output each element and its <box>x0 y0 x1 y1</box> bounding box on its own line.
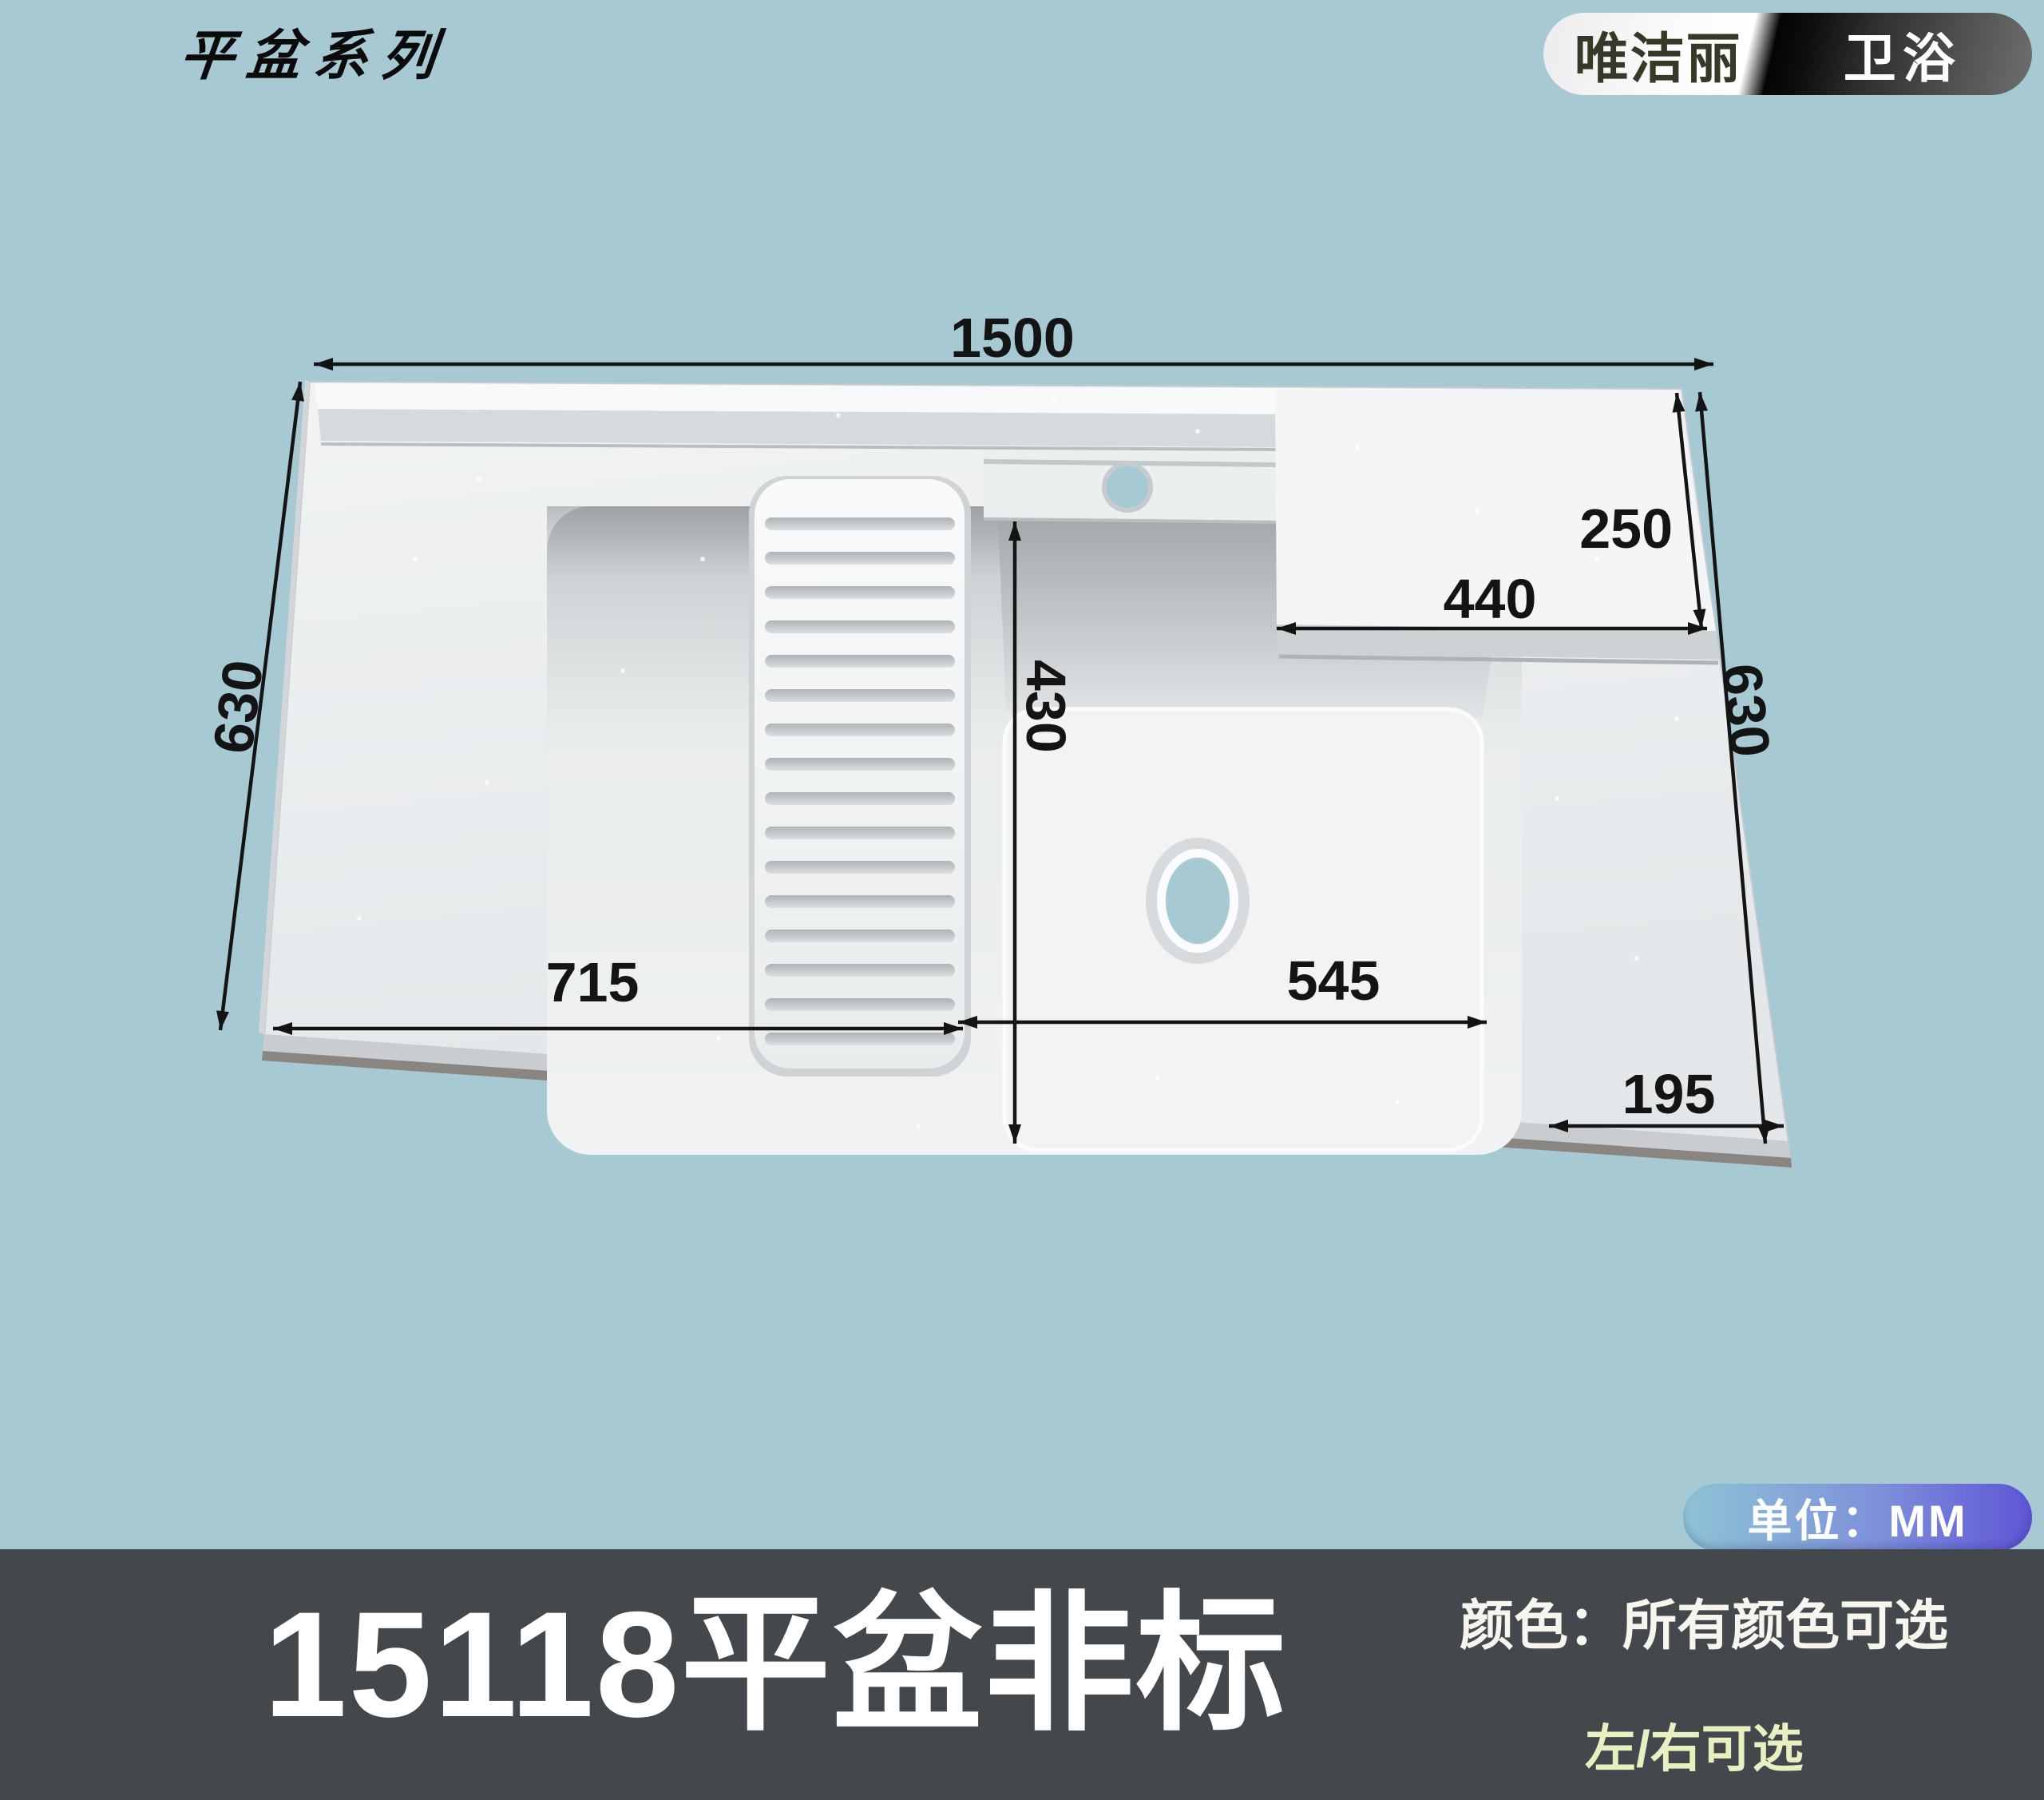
dim-label-basin-width: 545 <box>1287 950 1380 1012</box>
backsplash-front <box>318 409 1291 447</box>
side-option-note: 左/右可选 <box>1585 1723 1804 1774</box>
drain-hole <box>1166 858 1230 944</box>
color-option-note: 颜色：所有颜色可选 <box>1460 1599 1948 1653</box>
dim-label-total-width: 1500 <box>950 307 1075 369</box>
product-model: 15118平盆非标 <box>263 1589 1287 1739</box>
dim-label-right-depth: 630 <box>1710 660 1782 759</box>
faucet-hole <box>1104 464 1151 510</box>
unit-badge: 单位：MM <box>1683 1484 2032 1551</box>
dim-label-shelf-width: 440 <box>1444 568 1537 630</box>
washboard-plate <box>755 479 965 1069</box>
dim-label-right-margin: 195 <box>1622 1063 1716 1125</box>
unit-badge-label: 单位：MM <box>1747 1485 1967 1550</box>
dim-label-washboard: 715 <box>546 951 640 1013</box>
footer-bar: 15118平盆非标 颜色：所有颜色可选 左/右可选 <box>0 1549 2044 1800</box>
dim-label-shelf-depth: 250 <box>1579 498 1673 560</box>
dim-label-basin-depth: 430 <box>1015 660 1077 753</box>
countertop-photo <box>259 380 1792 1168</box>
dim-label-left-depth: 630 <box>201 656 275 756</box>
product-card: 平盆系列 唯洁丽 卫浴 <box>0 0 2044 1800</box>
